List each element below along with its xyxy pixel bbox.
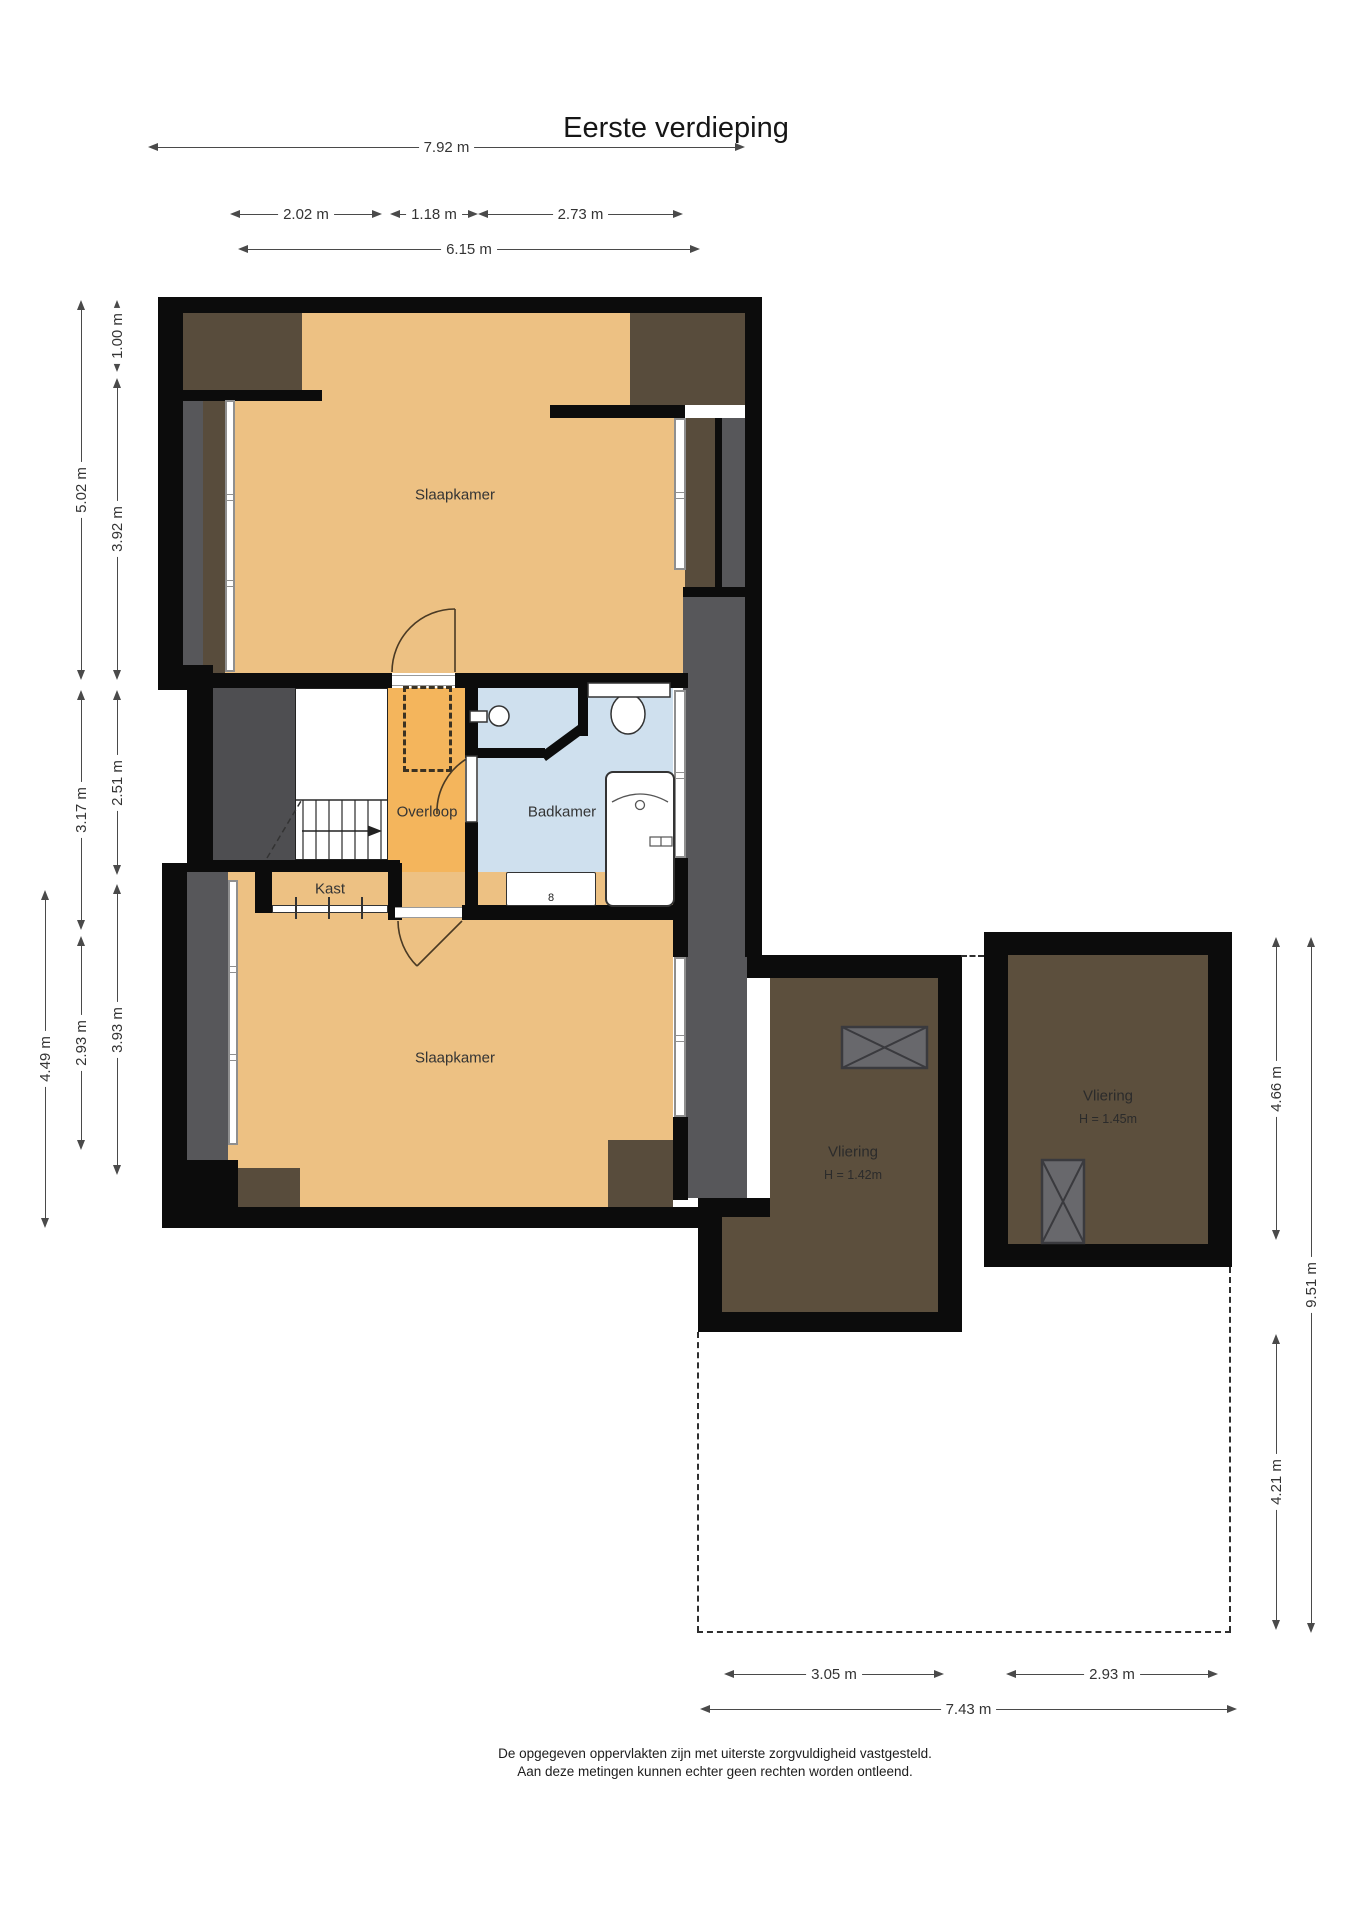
roof-zone-bottom-right (608, 1140, 673, 1207)
dim-left-449: 4.49 m (39, 890, 53, 1228)
wall-vliering2-bottom (984, 1244, 1232, 1267)
wall-vliering1-top (747, 955, 962, 978)
label-slaapkamer-boven: Slaapkamer (415, 487, 495, 504)
label-vliering-rechts: Vliering (1083, 1088, 1133, 1105)
window-bedroom2-right (674, 957, 686, 1117)
window-sash (226, 494, 234, 501)
wall-vliering2-right (1208, 932, 1232, 1267)
room-slaapkamer-onder-floor (187, 872, 673, 1207)
wall-vliering1-cap (722, 1198, 770, 1217)
disclaimer: De opgegeven oppervlakten zijn met uiter… (498, 1745, 932, 1780)
wall-right-divider (715, 418, 722, 587)
door-opening-badkamer (466, 756, 477, 821)
roof-edge-left-lower (187, 872, 228, 1190)
wall-left-cap (182, 665, 213, 675)
door-opening-bedroom2 (395, 907, 462, 918)
wall-right (745, 297, 762, 957)
wall-washbasin-nook (465, 748, 545, 758)
stair-void-zone (213, 688, 295, 860)
label-kast: Kast (315, 881, 345, 898)
kast-rail-tick (361, 897, 363, 919)
dim-left-502: 5.02 m (75, 300, 89, 680)
dim-left-293: 2.93 m (75, 936, 89, 1150)
roof-strip-left-upper (203, 390, 225, 675)
dim-top-118: 1.18 m (390, 208, 478, 222)
wall-middle-bottom (187, 860, 400, 872)
kast-rail-tick (328, 897, 330, 919)
kast-rail (272, 905, 388, 913)
kast-rail-tick (295, 897, 297, 919)
window-sash (229, 1054, 237, 1061)
note-vliering-links-height: H = 1.42m (824, 1168, 882, 1182)
dim-bottom-743: 7.43 m (700, 1703, 1237, 1717)
dim-bottom-293: 2.93 m (1006, 1668, 1218, 1682)
wall-left-middle (187, 688, 213, 872)
label-slaapkamer-onder: Slaapkamer (415, 1050, 495, 1067)
label-overloop: Overloop (397, 804, 458, 821)
dim-right-951: 9.51 m (1305, 937, 1319, 1633)
roof-outline-gap (961, 955, 984, 957)
dim-left-392: 3.92 m (111, 378, 125, 680)
wall-left-upper (158, 297, 183, 690)
door-opening-bedroom1 (392, 675, 455, 686)
wall-vliering1-right (938, 955, 962, 1332)
wall-right-cap (683, 587, 747, 597)
roof-zone-top-left (183, 312, 302, 390)
wall-under-roofzone-tl (183, 390, 322, 401)
roof-edge-right (683, 597, 747, 1198)
wall-bedroom1-bottom-left (183, 673, 392, 688)
roof-edge-right-upper (722, 418, 745, 587)
dim-bottom-305: 3.05 m (724, 1668, 944, 1682)
dim-top-273: 2.73 m (478, 208, 683, 222)
note-vliering-rechts-height: H = 1.45m (1079, 1112, 1137, 1126)
floorplan-page: Eerste verdieping (0, 0, 1358, 1920)
window-badkamer (674, 690, 686, 858)
wall-right-lower (673, 1117, 688, 1200)
window-bedroom1-left (225, 400, 235, 672)
wall-under-roofzone-tr (550, 405, 685, 418)
dim-top-615: 6.15 m (238, 243, 700, 257)
roof-zone-bottom-left (238, 1168, 300, 1207)
roof-edge-left-upper (182, 390, 203, 675)
wall-bedroom1-bottom-right (455, 673, 688, 688)
wall-badkamer-left-upper (465, 688, 478, 755)
dim-right-421: 4.21 m (1270, 1334, 1284, 1630)
label-badkamer: Badkamer (528, 804, 596, 821)
dim-left-100: 1.00 m (111, 300, 125, 372)
wall-bottom (162, 1207, 698, 1228)
roof-outline-left (697, 1332, 699, 1632)
window-sash (226, 580, 234, 587)
roof-strip-right-upper (685, 418, 715, 587)
wall-vliering2-top (984, 932, 1232, 955)
roof-outline-right (1229, 1267, 1231, 1632)
disclaimer-line1: De opgegeven oppervlakten zijn met uiter… (498, 1745, 932, 1763)
dim-right-466: 4.66 m (1270, 937, 1284, 1240)
label-vliering-links: Vliering (828, 1144, 878, 1161)
roof-outline-bottom (697, 1631, 1231, 1633)
wall-badkamer-left-lower (465, 822, 478, 920)
dim-left-393: 3.93 m (111, 884, 125, 1175)
wall-kast-left (255, 863, 272, 913)
roof-zone-top-right (630, 312, 745, 405)
dim-left-251: 2.51 m (111, 690, 125, 875)
window-sash (675, 492, 685, 499)
window-bedroom1-right (674, 418, 686, 570)
dim-left-317: 3.17 m (75, 690, 89, 930)
wall-between-right-windows (673, 858, 688, 957)
dim-top-792: 7.92 m (148, 141, 745, 155)
dim-top-202: 2.02 m (230, 208, 382, 222)
stairwell (295, 688, 388, 860)
room-vliering-links-floor-ext (722, 1217, 938, 1312)
loft-hatch (403, 686, 452, 772)
window-sash (675, 1035, 685, 1042)
window-bedroom2-left (228, 880, 238, 1145)
wall-toilet-divider (578, 688, 588, 736)
window-sash (675, 772, 685, 779)
wall-vliering1-bottom (698, 1312, 962, 1332)
wall-vliering1-left (698, 1198, 722, 1332)
wall-top (158, 297, 762, 313)
disclaimer-line2: Aan deze metingen kunnen echter geen rec… (498, 1763, 932, 1781)
radiator-symbol: 8 (548, 892, 554, 904)
wall-badkamer-bottom (462, 905, 688, 920)
wall-vliering2-left (984, 932, 1008, 1267)
window-sash (229, 966, 237, 973)
